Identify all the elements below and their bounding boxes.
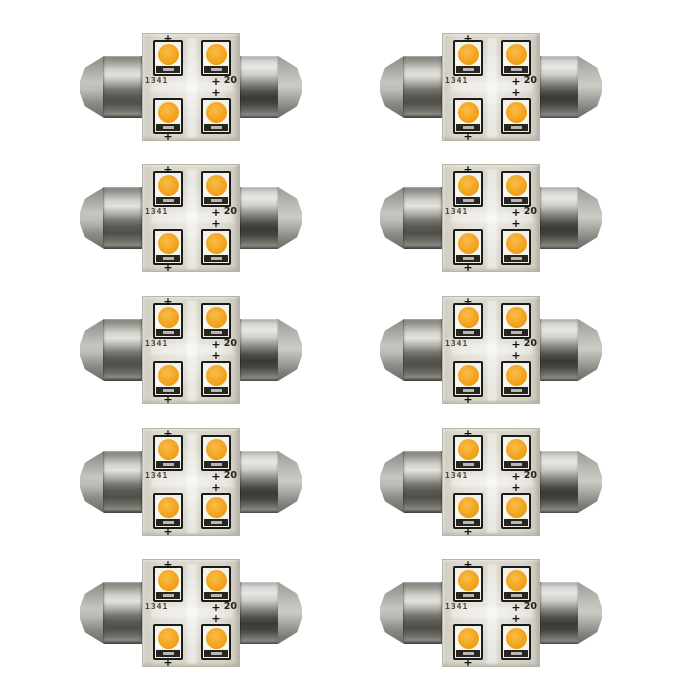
pcb-trace-vertical xyxy=(487,301,497,401)
led-pcb: + + + + 1341 20 xyxy=(142,33,240,141)
led-strip-marking xyxy=(211,331,222,334)
led-electrode-strip xyxy=(504,461,528,468)
led-electrode-strip xyxy=(156,329,180,336)
smd-led xyxy=(201,229,231,265)
pcb-trace-vertical xyxy=(487,38,497,138)
led-electrode-strip xyxy=(504,255,528,262)
cap-tip-left xyxy=(80,451,104,513)
cap-barrel-right xyxy=(540,582,579,644)
led-phosphor-dot xyxy=(158,439,179,460)
led-electrode-strip xyxy=(456,592,480,599)
led-electrode-strip xyxy=(156,197,180,204)
cap-tip-right xyxy=(278,582,302,644)
led-electrode-strip xyxy=(204,124,228,131)
led-strip-marking xyxy=(211,126,222,129)
smd-led xyxy=(501,303,531,339)
cap-barrel-left xyxy=(103,187,142,249)
end-cap-right xyxy=(540,451,602,513)
led-phosphor-dot xyxy=(506,628,527,649)
led-phosphor-dot xyxy=(506,365,527,386)
smd-led xyxy=(501,171,531,207)
smd-led xyxy=(153,229,183,265)
led-pcb: + + + + 1341 20 xyxy=(142,296,240,404)
led-phosphor-dot xyxy=(458,628,479,649)
smd-led xyxy=(201,624,231,660)
led-phosphor-dot xyxy=(206,570,227,591)
led-phosphor-dot xyxy=(158,102,179,123)
led-strip-marking xyxy=(211,652,222,655)
cap-tip-left xyxy=(380,56,404,118)
polarity-plus-mark: + xyxy=(162,262,174,273)
led-strip-marking xyxy=(463,652,474,655)
cap-barrel-right xyxy=(540,187,579,249)
led-phosphor-dot xyxy=(506,233,527,254)
smd-led xyxy=(453,98,483,134)
festoon-led-bulb: + + + + 1341 20 xyxy=(380,33,602,141)
led-pcb: + + + + 1341 20 xyxy=(442,33,540,141)
led-phosphor-dot xyxy=(158,570,179,591)
festoon-led-bulb: + + + + 1341 20 xyxy=(80,33,302,141)
festoon-led-bulb: + + + + 1341 20 xyxy=(380,428,602,536)
polarity-plus-mark: + xyxy=(210,613,222,624)
cap-barrel-left xyxy=(103,319,142,381)
polarity-plus-mark: + xyxy=(210,218,222,229)
led-phosphor-dot xyxy=(506,439,527,460)
end-cap-right xyxy=(540,187,602,249)
cap-tip-left xyxy=(80,56,104,118)
cap-barrel-right xyxy=(240,582,279,644)
pcb-size-marking: 20 xyxy=(524,207,537,217)
smd-led xyxy=(201,361,231,397)
led-phosphor-dot xyxy=(506,44,527,65)
polarity-plus-mark: + xyxy=(462,657,474,668)
polarity-plus-mark: + xyxy=(210,482,222,493)
polarity-plus-mark: + xyxy=(162,526,174,537)
pcb-trace-vertical xyxy=(487,169,497,269)
polarity-plus-mark: + xyxy=(162,559,174,570)
cap-tip-right xyxy=(578,187,602,249)
led-strip-marking xyxy=(163,126,174,129)
led-electrode-strip xyxy=(504,329,528,336)
smd-led xyxy=(501,493,531,529)
led-phosphor-dot xyxy=(158,307,179,328)
cap-barrel-right xyxy=(240,56,279,118)
cap-tip-right xyxy=(278,56,302,118)
end-cap-left xyxy=(80,187,142,249)
led-strip-marking xyxy=(211,389,222,392)
end-cap-right xyxy=(240,187,302,249)
led-strip-marking xyxy=(163,652,174,655)
led-electrode-strip xyxy=(204,461,228,468)
led-strip-marking xyxy=(163,521,174,524)
cap-tip-left xyxy=(80,319,104,381)
pcb-batch-marking: 1341 xyxy=(445,340,468,348)
led-strip-marking xyxy=(511,389,522,392)
led-strip-marking xyxy=(511,594,522,597)
led-pcb: + + + + 1341 20 xyxy=(442,559,540,667)
led-phosphor-dot xyxy=(506,307,527,328)
led-strip-marking xyxy=(511,463,522,466)
end-cap-right xyxy=(240,56,302,118)
led-strip-marking xyxy=(211,199,222,202)
festoon-led-bulb: + + + + 1341 20 xyxy=(80,559,302,667)
end-cap-left xyxy=(80,319,142,381)
led-phosphor-dot xyxy=(158,233,179,254)
pcb-trace-vertical xyxy=(487,433,497,533)
led-strip-marking xyxy=(511,257,522,260)
end-cap-left xyxy=(380,187,442,249)
smd-led xyxy=(201,98,231,134)
end-cap-right xyxy=(540,582,602,644)
led-strip-marking xyxy=(463,68,474,71)
pcb-trace-vertical xyxy=(187,169,197,269)
cap-tip-right xyxy=(578,582,602,644)
led-phosphor-dot xyxy=(458,365,479,386)
led-electrode-strip xyxy=(504,66,528,73)
led-phosphor-dot xyxy=(506,175,527,196)
led-phosphor-dot xyxy=(206,307,227,328)
led-electrode-strip xyxy=(156,461,180,468)
led-phosphor-dot xyxy=(506,497,527,518)
led-electrode-strip xyxy=(504,124,528,131)
cap-barrel-right xyxy=(540,56,579,118)
polarity-plus-mark: + xyxy=(510,482,522,493)
led-strip-marking xyxy=(463,594,474,597)
smd-led xyxy=(153,303,183,339)
led-pcb: + + + + 1341 20 xyxy=(442,428,540,536)
pcb-size-marking: 20 xyxy=(224,339,237,349)
led-strip-marking xyxy=(211,463,222,466)
smd-led xyxy=(453,171,483,207)
pcb-size-marking: 20 xyxy=(524,339,537,349)
led-strip-marking xyxy=(511,199,522,202)
pcb-trace-vertical xyxy=(487,564,497,664)
led-electrode-strip xyxy=(204,650,228,657)
cap-tip-right xyxy=(578,56,602,118)
cap-barrel-left xyxy=(103,582,142,644)
pcb-batch-marking: 1341 xyxy=(445,208,468,216)
cap-tip-right xyxy=(278,451,302,513)
led-strip-marking xyxy=(463,199,474,202)
led-phosphor-dot xyxy=(458,102,479,123)
polarity-plus-mark: + xyxy=(462,526,474,537)
smd-led xyxy=(153,361,183,397)
led-strip-marking xyxy=(511,652,522,655)
led-phosphor-dot xyxy=(458,175,479,196)
cap-barrel-left xyxy=(103,451,142,513)
end-cap-left xyxy=(80,56,142,118)
smd-led xyxy=(153,40,183,76)
led-electrode-strip xyxy=(204,197,228,204)
led-electrode-strip xyxy=(504,650,528,657)
led-strip-marking xyxy=(211,68,222,71)
led-phosphor-dot xyxy=(158,175,179,196)
smd-led xyxy=(501,624,531,660)
led-strip-marking xyxy=(211,257,222,260)
polarity-plus-mark: + xyxy=(462,131,474,142)
end-cap-left xyxy=(80,582,142,644)
polarity-plus-mark: + xyxy=(462,394,474,405)
cap-tip-left xyxy=(380,582,404,644)
polarity-plus-mark: + xyxy=(510,613,522,624)
led-electrode-strip xyxy=(156,66,180,73)
smd-led xyxy=(201,171,231,207)
smd-led xyxy=(453,624,483,660)
cap-barrel-right xyxy=(240,451,279,513)
smd-led xyxy=(201,566,231,602)
festoon-led-bulb: + + + + 1341 20 xyxy=(380,296,602,404)
cap-barrel-left xyxy=(403,187,442,249)
led-strip-marking xyxy=(463,521,474,524)
smd-led xyxy=(453,566,483,602)
smd-led xyxy=(501,435,531,471)
polarity-plus-mark: + xyxy=(510,218,522,229)
pcb-size-marking: 20 xyxy=(224,602,237,612)
pcb-batch-marking: 1341 xyxy=(145,208,168,216)
led-phosphor-dot xyxy=(458,497,479,518)
led-strip-marking xyxy=(163,199,174,202)
pcb-size-marking: 20 xyxy=(224,207,237,217)
led-pcb: + + + + 1341 20 xyxy=(442,296,540,404)
led-phosphor-dot xyxy=(158,497,179,518)
led-phosphor-dot xyxy=(206,44,227,65)
cap-tip-left xyxy=(80,187,104,249)
led-phosphor-dot xyxy=(206,628,227,649)
end-cap-right xyxy=(240,582,302,644)
pcb-batch-marking: 1341 xyxy=(445,472,468,480)
led-pcb: + + + + 1341 20 xyxy=(142,164,240,272)
led-strip-marking xyxy=(163,331,174,334)
led-phosphor-dot xyxy=(458,570,479,591)
smd-led xyxy=(201,435,231,471)
led-strip-marking xyxy=(463,126,474,129)
cap-barrel-left xyxy=(403,582,442,644)
polarity-plus-mark: + xyxy=(210,350,222,361)
cap-tip-left xyxy=(380,319,404,381)
smd-led xyxy=(501,98,531,134)
pcb-size-marking: 20 xyxy=(524,471,537,481)
led-electrode-strip xyxy=(204,592,228,599)
smd-led xyxy=(201,493,231,529)
led-strip-marking xyxy=(211,594,222,597)
smd-led xyxy=(153,566,183,602)
smd-led xyxy=(153,624,183,660)
smd-led xyxy=(453,493,483,529)
festoon-led-bulb: + + + + 1341 20 xyxy=(380,559,602,667)
polarity-plus-mark: + xyxy=(462,296,474,307)
polarity-plus-mark: + xyxy=(162,657,174,668)
pcb-trace-vertical xyxy=(187,301,197,401)
pcb-size-marking: 20 xyxy=(224,471,237,481)
cap-tip-right xyxy=(278,319,302,381)
smd-led xyxy=(453,361,483,397)
led-electrode-strip xyxy=(504,592,528,599)
cap-barrel-right xyxy=(540,451,579,513)
cap-barrel-right xyxy=(540,319,579,381)
led-pcb: + + + + 1341 20 xyxy=(142,559,240,667)
polarity-plus-mark: + xyxy=(162,296,174,307)
led-phosphor-dot xyxy=(458,44,479,65)
led-phosphor-dot xyxy=(458,307,479,328)
polarity-plus-mark: + xyxy=(162,394,174,405)
smd-led xyxy=(453,229,483,265)
led-electrode-strip xyxy=(504,519,528,526)
festoon-led-bulb: + + + + 1341 20 xyxy=(80,296,302,404)
smd-led xyxy=(153,493,183,529)
polarity-plus-mark: + xyxy=(462,164,474,175)
polarity-plus-mark: + xyxy=(162,131,174,142)
polarity-plus-mark: + xyxy=(162,164,174,175)
led-electrode-strip xyxy=(156,592,180,599)
led-phosphor-dot xyxy=(206,365,227,386)
polarity-plus-mark: + xyxy=(462,33,474,44)
led-electrode-strip xyxy=(204,519,228,526)
pcb-size-marking: 20 xyxy=(224,76,237,86)
led-phosphor-dot xyxy=(206,497,227,518)
led-phosphor-dot xyxy=(506,102,527,123)
end-cap-left xyxy=(380,56,442,118)
led-pcb: + + + + 1341 20 xyxy=(442,164,540,272)
polarity-plus-mark: + xyxy=(462,559,474,570)
cap-tip-right xyxy=(578,319,602,381)
led-strip-marking xyxy=(511,331,522,334)
led-phosphor-dot xyxy=(506,570,527,591)
smd-led xyxy=(501,40,531,76)
pcb-batch-marking: 1341 xyxy=(445,77,468,85)
end-cap-left xyxy=(380,451,442,513)
led-strip-marking xyxy=(463,257,474,260)
led-phosphor-dot xyxy=(206,175,227,196)
led-electrode-strip xyxy=(504,387,528,394)
led-electrode-strip xyxy=(204,66,228,73)
led-strip-marking xyxy=(163,594,174,597)
polarity-plus-mark: + xyxy=(510,87,522,98)
pcb-size-marking: 20 xyxy=(524,602,537,612)
pcb-batch-marking: 1341 xyxy=(445,603,468,611)
led-strip-marking xyxy=(511,521,522,524)
pcb-batch-marking: 1341 xyxy=(145,77,168,85)
end-cap-right xyxy=(540,56,602,118)
pcb-batch-marking: 1341 xyxy=(145,472,168,480)
led-strip-marking xyxy=(463,331,474,334)
led-phosphor-dot xyxy=(158,365,179,386)
smd-led xyxy=(153,98,183,134)
end-cap-right xyxy=(240,319,302,381)
led-pcb: + + + + 1341 20 xyxy=(142,428,240,536)
smd-led xyxy=(453,435,483,471)
end-cap-left xyxy=(380,319,442,381)
smd-led xyxy=(153,171,183,207)
led-phosphor-dot xyxy=(206,439,227,460)
smd-led xyxy=(201,40,231,76)
led-strip-marking xyxy=(511,126,522,129)
bulb-grid: + + + + 1341 20 xyxy=(0,0,700,700)
led-strip-marking xyxy=(511,68,522,71)
cap-barrel-right xyxy=(240,187,279,249)
led-strip-marking xyxy=(211,521,222,524)
smd-led xyxy=(453,40,483,76)
cap-tip-right xyxy=(578,451,602,513)
led-electrode-strip xyxy=(504,197,528,204)
led-phosphor-dot xyxy=(158,628,179,649)
led-electrode-strip xyxy=(204,255,228,262)
end-cap-left xyxy=(380,582,442,644)
led-strip-marking xyxy=(163,389,174,392)
polarity-plus-mark: + xyxy=(462,262,474,273)
pcb-size-marking: 20 xyxy=(524,76,537,86)
pcb-trace-vertical xyxy=(187,38,197,138)
smd-led xyxy=(453,303,483,339)
cap-tip-right xyxy=(278,187,302,249)
led-phosphor-dot xyxy=(206,233,227,254)
polarity-plus-mark: + xyxy=(510,350,522,361)
end-cap-right xyxy=(240,451,302,513)
led-phosphor-dot xyxy=(158,44,179,65)
polarity-plus-mark: + xyxy=(162,33,174,44)
smd-led xyxy=(201,303,231,339)
led-strip-marking xyxy=(163,257,174,260)
end-cap-left xyxy=(80,451,142,513)
led-phosphor-dot xyxy=(458,439,479,460)
pcb-batch-marking: 1341 xyxy=(145,603,168,611)
end-cap-right xyxy=(540,319,602,381)
led-electrode-strip xyxy=(456,197,480,204)
cap-barrel-left xyxy=(403,319,442,381)
led-strip-marking xyxy=(463,389,474,392)
smd-led xyxy=(501,229,531,265)
polarity-plus-mark: + xyxy=(210,87,222,98)
smd-led xyxy=(501,566,531,602)
led-strip-marking xyxy=(463,463,474,466)
led-electrode-strip xyxy=(456,329,480,336)
pcb-trace-vertical xyxy=(187,564,197,664)
led-phosphor-dot xyxy=(206,102,227,123)
smd-led xyxy=(153,435,183,471)
cap-barrel-left xyxy=(403,56,442,118)
led-strip-marking xyxy=(163,68,174,71)
cap-tip-left xyxy=(380,187,404,249)
cap-barrel-left xyxy=(403,451,442,513)
smd-led xyxy=(501,361,531,397)
polarity-plus-mark: + xyxy=(462,428,474,439)
cap-tip-left xyxy=(80,582,104,644)
led-electrode-strip xyxy=(204,329,228,336)
cap-barrel-left xyxy=(103,56,142,118)
led-electrode-strip xyxy=(204,387,228,394)
festoon-led-bulb: + + + + 1341 20 xyxy=(80,164,302,272)
led-strip-marking xyxy=(163,463,174,466)
polarity-plus-mark: + xyxy=(162,428,174,439)
cap-barrel-right xyxy=(240,319,279,381)
led-electrode-strip xyxy=(456,66,480,73)
festoon-led-bulb: + + + + 1341 20 xyxy=(80,428,302,536)
pcb-trace-vertical xyxy=(187,433,197,533)
pcb-batch-marking: 1341 xyxy=(145,340,168,348)
led-electrode-strip xyxy=(456,461,480,468)
led-phosphor-dot xyxy=(458,233,479,254)
cap-tip-left xyxy=(380,451,404,513)
festoon-led-bulb: + + + + 1341 20 xyxy=(380,164,602,272)
